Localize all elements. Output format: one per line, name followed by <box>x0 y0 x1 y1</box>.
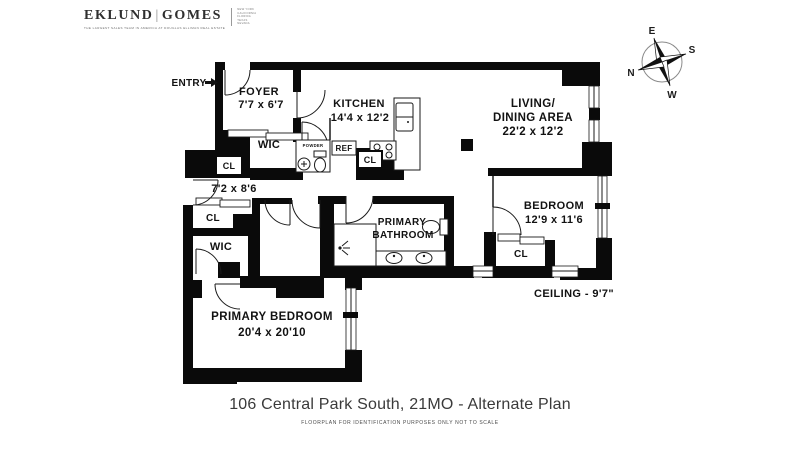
living-label-1: LIVING/ <box>511 98 556 110</box>
floorplan-page: EKLUND|GOMES THE LARGEST SALES TEAM IN A… <box>0 0 800 450</box>
ref-label: REF <box>336 144 353 153</box>
sink-icon <box>416 253 432 264</box>
compass-east-label: E <box>649 26 656 37</box>
compass-north-label: N <box>627 68 634 79</box>
sink-icon <box>386 253 402 264</box>
foyer-dims: 7'7 x 6'7 <box>238 99 284 111</box>
bedroom-label: BEDROOM <box>524 200 584 212</box>
primary-bathroom-label-1: PRIMARY <box>378 217 427 228</box>
cl-foyer-label: CL <box>223 161 236 171</box>
cl-bedroom-label: CL <box>514 249 528 260</box>
toilet-icon <box>315 158 326 172</box>
kitchen-label: KITCHEN <box>333 98 385 110</box>
powder-label: POWDER <box>303 143 324 148</box>
primary-bathroom-label-2: BATHROOM <box>372 230 433 241</box>
page-title: 106 Central Park South, 21MO - Alternate… <box>0 396 800 414</box>
wic-upper-label: WIC <box>258 139 280 151</box>
primary-bedroom-label: PRIMARY BEDROOM <box>211 311 333 323</box>
ceiling-height-label: CEILING - 9'7" <box>534 288 614 300</box>
living-dims: 22'2 x 12'2 <box>502 126 563 138</box>
cl-kitchen-label: CL <box>364 155 377 165</box>
foyer-label: FOYER <box>239 86 279 98</box>
cl-hall-label: CL <box>206 213 220 224</box>
compass-west-label: W <box>667 90 677 101</box>
kitchen-dims: 14'4 x 12'2 <box>331 112 390 124</box>
compass-rose-icon: E S N W <box>627 26 695 101</box>
floor-plan: ENTRY FOYER 7'7 x 6'7 KITCHEN 14'4 x 12'… <box>0 0 800 450</box>
entry-label: ENTRY <box>171 78 206 89</box>
hallway-dims: 7'2 x 8'6 <box>211 183 257 195</box>
wic-lower-label: WIC <box>210 241 232 253</box>
shower <box>334 224 376 266</box>
bedroom-dims: 12'9 x 11'6 <box>525 214 583 226</box>
toilet-tank-icon <box>314 151 326 157</box>
living-label-2: DINING AREA <box>493 112 573 124</box>
primary-bedroom-dims: 20'4 x 20'10 <box>238 327 306 339</box>
footer-disclaimer: FLOORPLAN FOR IDENTIFICATION PURPOSES ON… <box>0 420 800 426</box>
toilet-tank-icon <box>440 219 448 235</box>
compass-south-label: S <box>689 45 696 56</box>
